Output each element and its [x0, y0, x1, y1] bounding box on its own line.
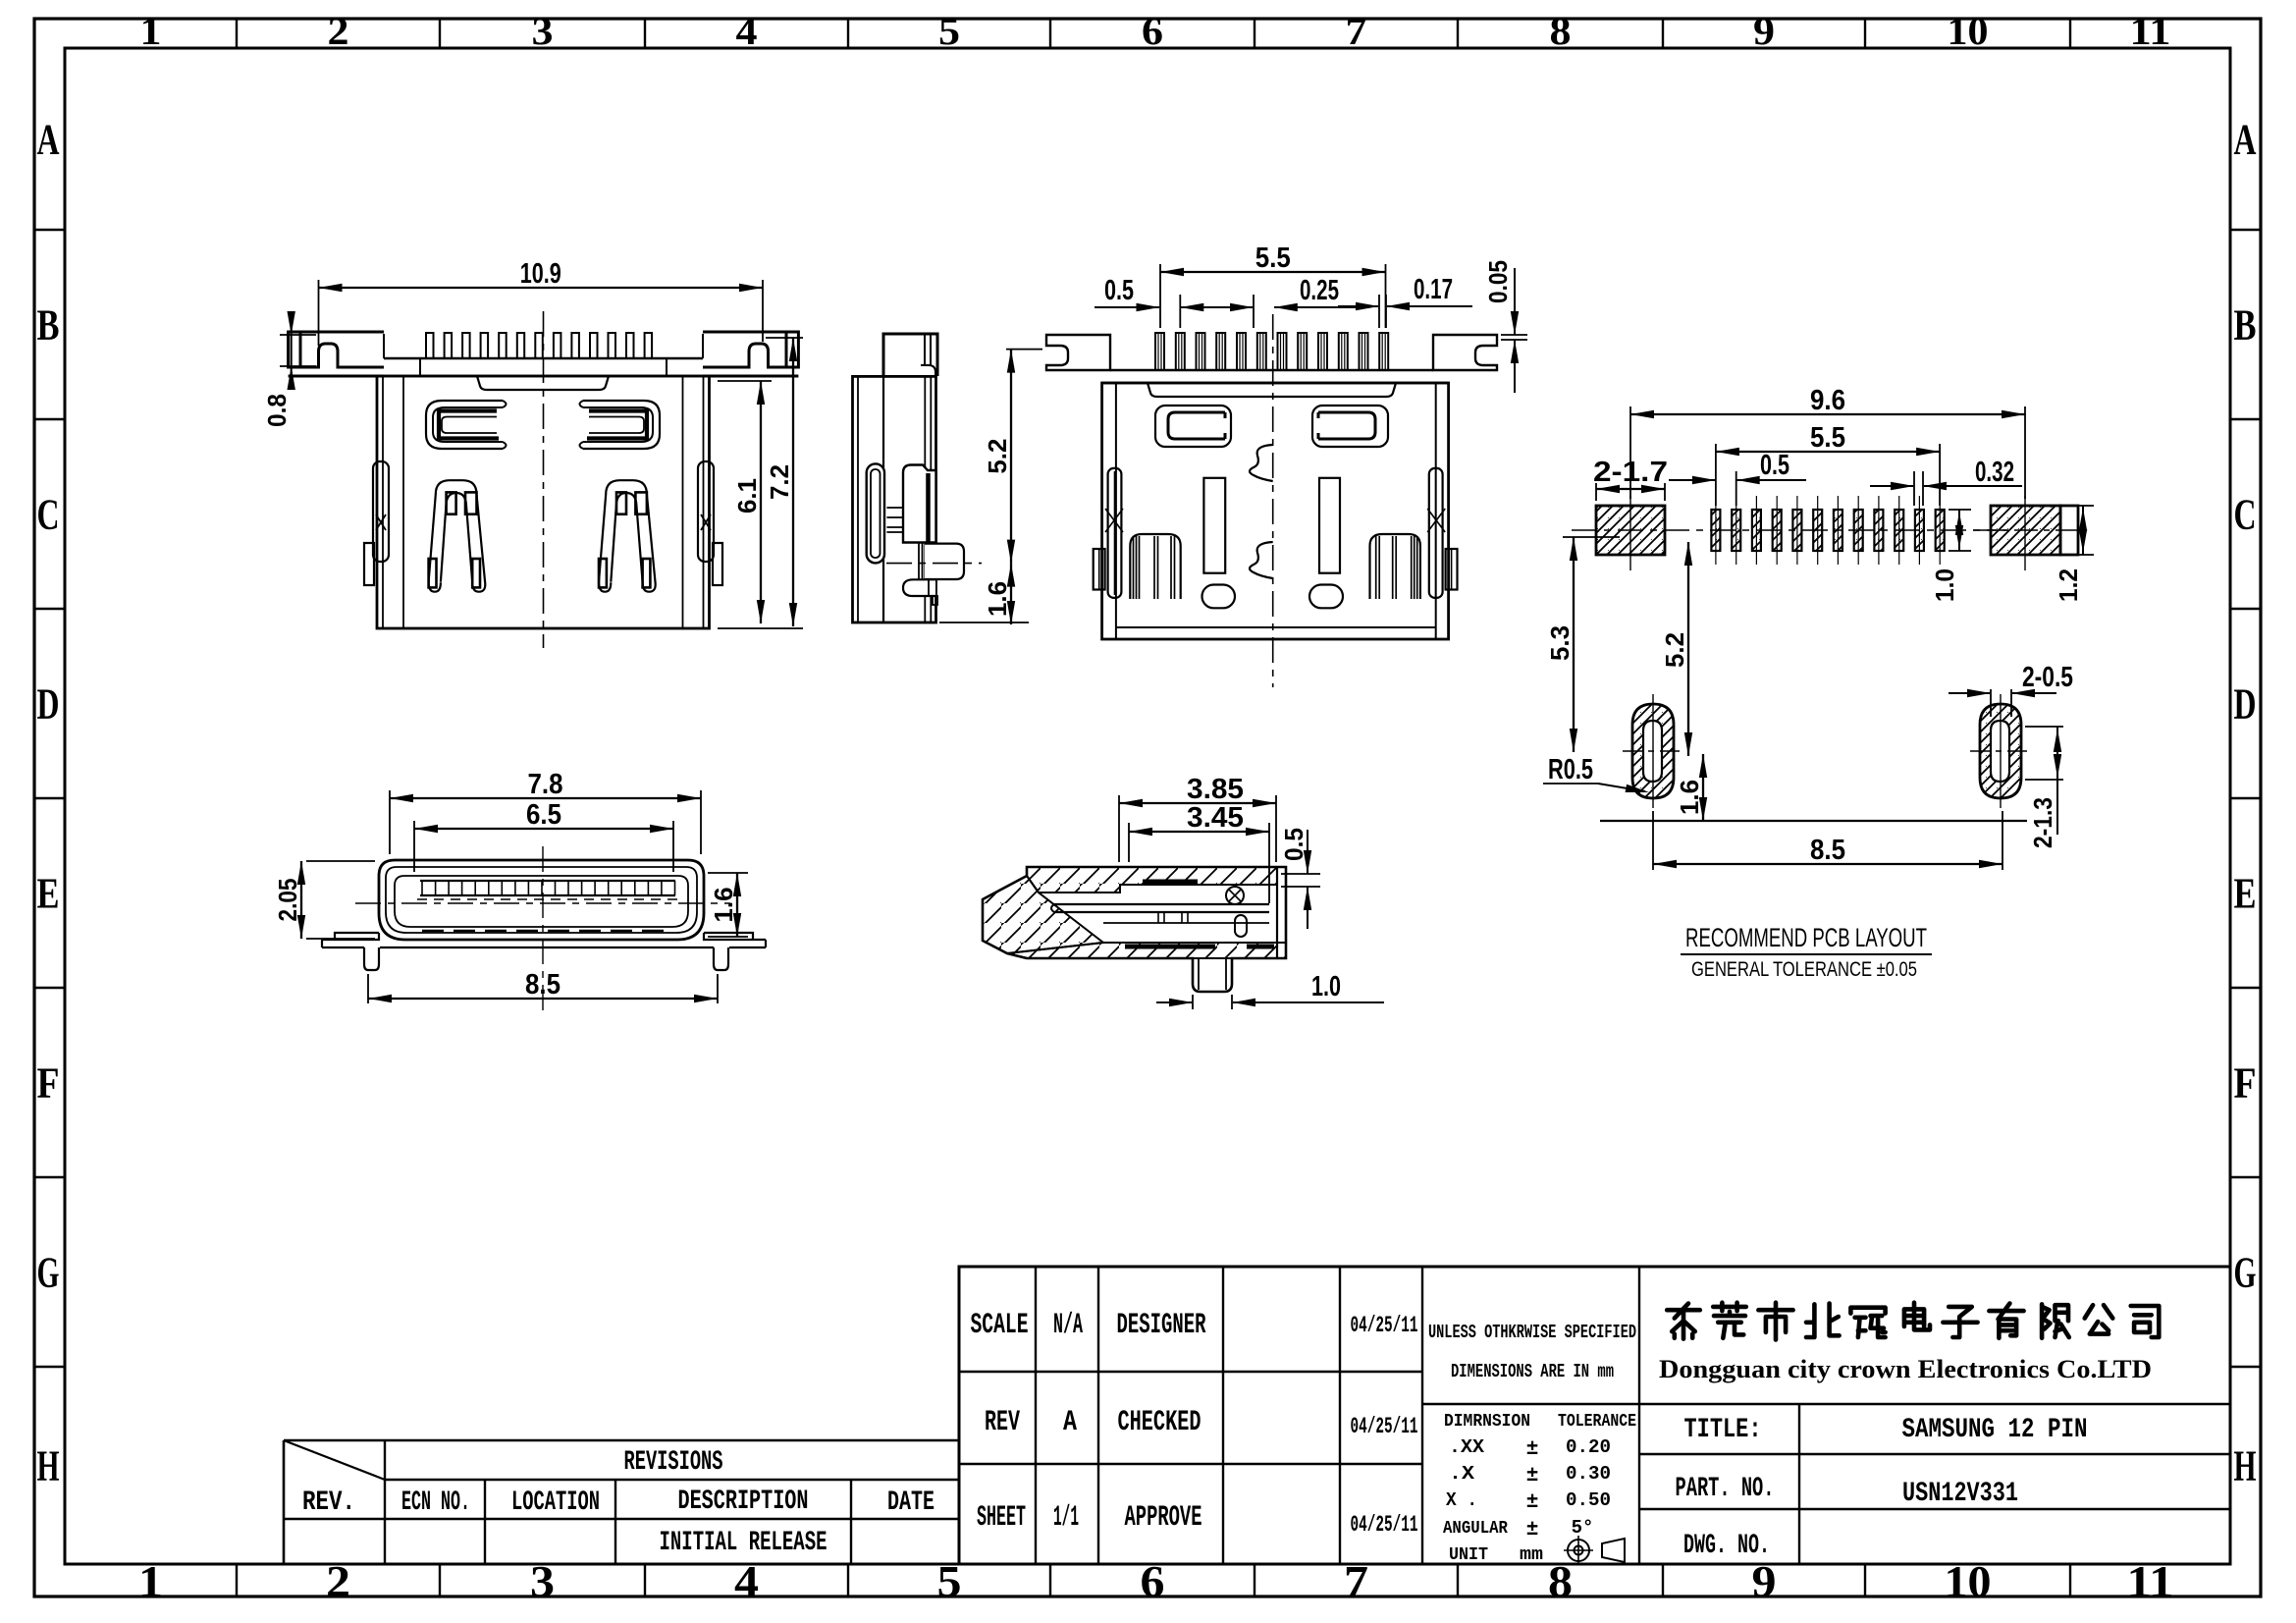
svg-text:5.3: 5.3	[1545, 625, 1575, 661]
svg-text:5°: 5°	[1572, 1517, 1594, 1539]
svg-text:DWG. NO.: DWG. NO.	[1683, 1531, 1770, 1561]
svg-text:0.5: 0.5	[1760, 450, 1789, 481]
svg-text:Dongguan city crown Electronic: Dongguan city crown Electronics Co.LTD	[1659, 1355, 2152, 1383]
svg-text:R0.5: R0.5	[1548, 754, 1593, 785]
svg-text:F: F	[37, 1059, 60, 1108]
svg-text:5.5: 5.5	[1255, 243, 1291, 274]
svg-text:5.2: 5.2	[983, 439, 1012, 474]
svg-text:INITIAL RELEASE: INITIAL RELEASE	[660, 1528, 828, 1558]
svg-text:0.50: 0.50	[1566, 1489, 1611, 1511]
svg-text:5: 5	[938, 9, 960, 53]
svg-text:CHECKED: CHECKED	[1118, 1406, 1201, 1439]
svg-text:2-0.5: 2-0.5	[2022, 662, 2073, 693]
svg-text:F: F	[2234, 1059, 2257, 1108]
svg-text:04/25/11: 04/25/11	[1351, 1414, 1418, 1439]
svg-text:3.85: 3.85	[1187, 774, 1244, 805]
svg-text:A: A	[2234, 116, 2257, 164]
svg-text:A: A	[1063, 1406, 1077, 1439]
svg-text:±: ±	[1526, 1465, 1539, 1488]
svg-text:PART. NO.: PART. NO.	[1676, 1474, 1775, 1504]
svg-text:4: 4	[736, 9, 758, 53]
svg-text:1/1: 1/1	[1053, 1501, 1079, 1535]
svg-text:±: ±	[1526, 1438, 1539, 1461]
svg-text:0.25: 0.25	[1300, 275, 1339, 306]
svg-text:3: 3	[532, 9, 554, 53]
svg-text:ANGULAR: ANGULAR	[1443, 1519, 1508, 1539]
svg-text:8.5: 8.5	[525, 969, 561, 1001]
svg-text:B: B	[37, 301, 60, 350]
svg-text:UNLESS OTHKRWISE SPECIFIED: UNLESS OTHKRWISE SPECIFIED	[1428, 1322, 1636, 1343]
svg-text:5.2: 5.2	[1660, 632, 1689, 668]
svg-text:1: 1	[140, 9, 162, 53]
svg-text:04/25/11: 04/25/11	[1351, 1313, 1418, 1338]
svg-text:9: 9	[1753, 9, 1775, 53]
svg-text:2: 2	[328, 9, 349, 53]
svg-text:TITLE:: TITLE:	[1684, 1415, 1762, 1445]
svg-text:USN12V331: USN12V331	[1902, 1479, 2018, 1509]
svg-text:5.5: 5.5	[1810, 422, 1845, 454]
svg-text:0.20: 0.20	[1566, 1436, 1611, 1458]
svg-text:REVISIONS: REVISIONS	[624, 1447, 723, 1478]
svg-text:8: 8	[1550, 9, 1572, 53]
svg-text:DATE: DATE	[887, 1488, 934, 1518]
svg-text:A: A	[37, 116, 60, 164]
svg-text:GENERAL TOLERANCE ±0.05: GENERAL TOLERANCE ±0.05	[1691, 958, 1917, 981]
svg-text:04/25/11: 04/25/11	[1351, 1512, 1418, 1538]
svg-text:6.1: 6.1	[732, 478, 762, 514]
svg-text:D: D	[37, 680, 60, 729]
svg-text:X .: X .	[1446, 1489, 1477, 1511]
svg-text:±: ±	[1526, 1491, 1539, 1514]
svg-text:.XX: .XX	[1449, 1436, 1485, 1458]
svg-text:SCALE: SCALE	[971, 1309, 1029, 1342]
svg-text:G: G	[37, 1249, 60, 1297]
svg-text:E: E	[2234, 870, 2257, 918]
svg-text:7: 7	[1346, 9, 1367, 53]
svg-text:7.8: 7.8	[528, 769, 563, 800]
svg-text:1.6: 1.6	[1675, 780, 1704, 815]
svg-text:6: 6	[1142, 9, 1163, 53]
svg-text:REV.: REV.	[302, 1488, 355, 1518]
svg-text:2-1.7: 2-1.7	[1593, 457, 1668, 488]
svg-text:C: C	[37, 491, 60, 539]
svg-text:1.0: 1.0	[1311, 971, 1341, 1002]
svg-text:E: E	[37, 870, 60, 918]
svg-text:10.9: 10.9	[520, 258, 561, 290]
svg-text:H: H	[37, 1442, 60, 1490]
svg-text:ECN NO.: ECN NO.	[401, 1488, 470, 1518]
svg-text:1.6: 1.6	[983, 581, 1012, 617]
svg-text:SAMSUNG 12 PIN: SAMSUNG 12 PIN	[1902, 1415, 2088, 1445]
svg-text:2: 2	[326, 1556, 350, 1606]
svg-text:B: B	[2234, 301, 2257, 350]
svg-text:DIMENSIONS ARE IN mm: DIMENSIONS ARE IN mm	[1451, 1361, 1614, 1382]
svg-text:10: 10	[1948, 9, 1989, 53]
svg-text:D: D	[2234, 680, 2257, 729]
svg-text:UNIT: UNIT	[1449, 1545, 1488, 1565]
svg-text:0.5: 0.5	[1279, 828, 1308, 861]
svg-text:C: C	[2234, 491, 2257, 539]
svg-text:3: 3	[530, 1556, 555, 1606]
svg-text:SHEET: SHEET	[977, 1501, 1026, 1535]
svg-text:0.32: 0.32	[1975, 457, 2014, 488]
svg-text:G: G	[2234, 1249, 2257, 1297]
svg-text:H: H	[2234, 1442, 2257, 1490]
svg-text:RECOMMEND PCB LAYOUT: RECOMMEND PCB LAYOUT	[1685, 923, 1927, 952]
svg-text:9.6: 9.6	[1810, 385, 1845, 416]
svg-text:0.8: 0.8	[262, 394, 292, 427]
svg-text:DESCRIPTION: DESCRIPTION	[678, 1487, 809, 1517]
svg-text:2-1.3: 2-1.3	[2028, 797, 2057, 848]
svg-text:0.30: 0.30	[1566, 1463, 1611, 1485]
svg-text:1.6: 1.6	[709, 888, 738, 923]
svg-text:TOLERANCE: TOLERANCE	[1558, 1412, 1636, 1432]
svg-text:3.45: 3.45	[1187, 802, 1244, 834]
svg-text:0.17: 0.17	[1414, 274, 1453, 305]
svg-text:0.05: 0.05	[1483, 260, 1513, 303]
svg-text:1.2: 1.2	[2054, 568, 2083, 602]
svg-text:±: ±	[1526, 1519, 1539, 1542]
svg-text:7.2: 7.2	[765, 464, 794, 500]
svg-text:DIMRNSION: DIMRNSION	[1444, 1412, 1530, 1432]
svg-text:mm: mm	[1520, 1545, 1543, 1565]
svg-text:6.5: 6.5	[526, 799, 561, 831]
svg-text:.X: .X	[1449, 1463, 1475, 1485]
svg-text:0.5: 0.5	[1104, 275, 1134, 306]
svg-text:DESIGNER: DESIGNER	[1117, 1309, 1206, 1342]
svg-text:LOCATION: LOCATION	[511, 1488, 600, 1518]
svg-text:11: 11	[2130, 9, 2171, 53]
svg-text:8.5: 8.5	[1810, 835, 1845, 866]
svg-text:REV: REV	[985, 1406, 1020, 1439]
svg-text:1.0: 1.0	[1930, 568, 1959, 602]
svg-text:1: 1	[138, 1556, 163, 1606]
svg-text:APPROVE: APPROVE	[1125, 1501, 1202, 1535]
svg-text:2.05: 2.05	[273, 879, 302, 922]
svg-text:4: 4	[734, 1556, 759, 1606]
svg-text:N/A: N/A	[1053, 1309, 1083, 1342]
